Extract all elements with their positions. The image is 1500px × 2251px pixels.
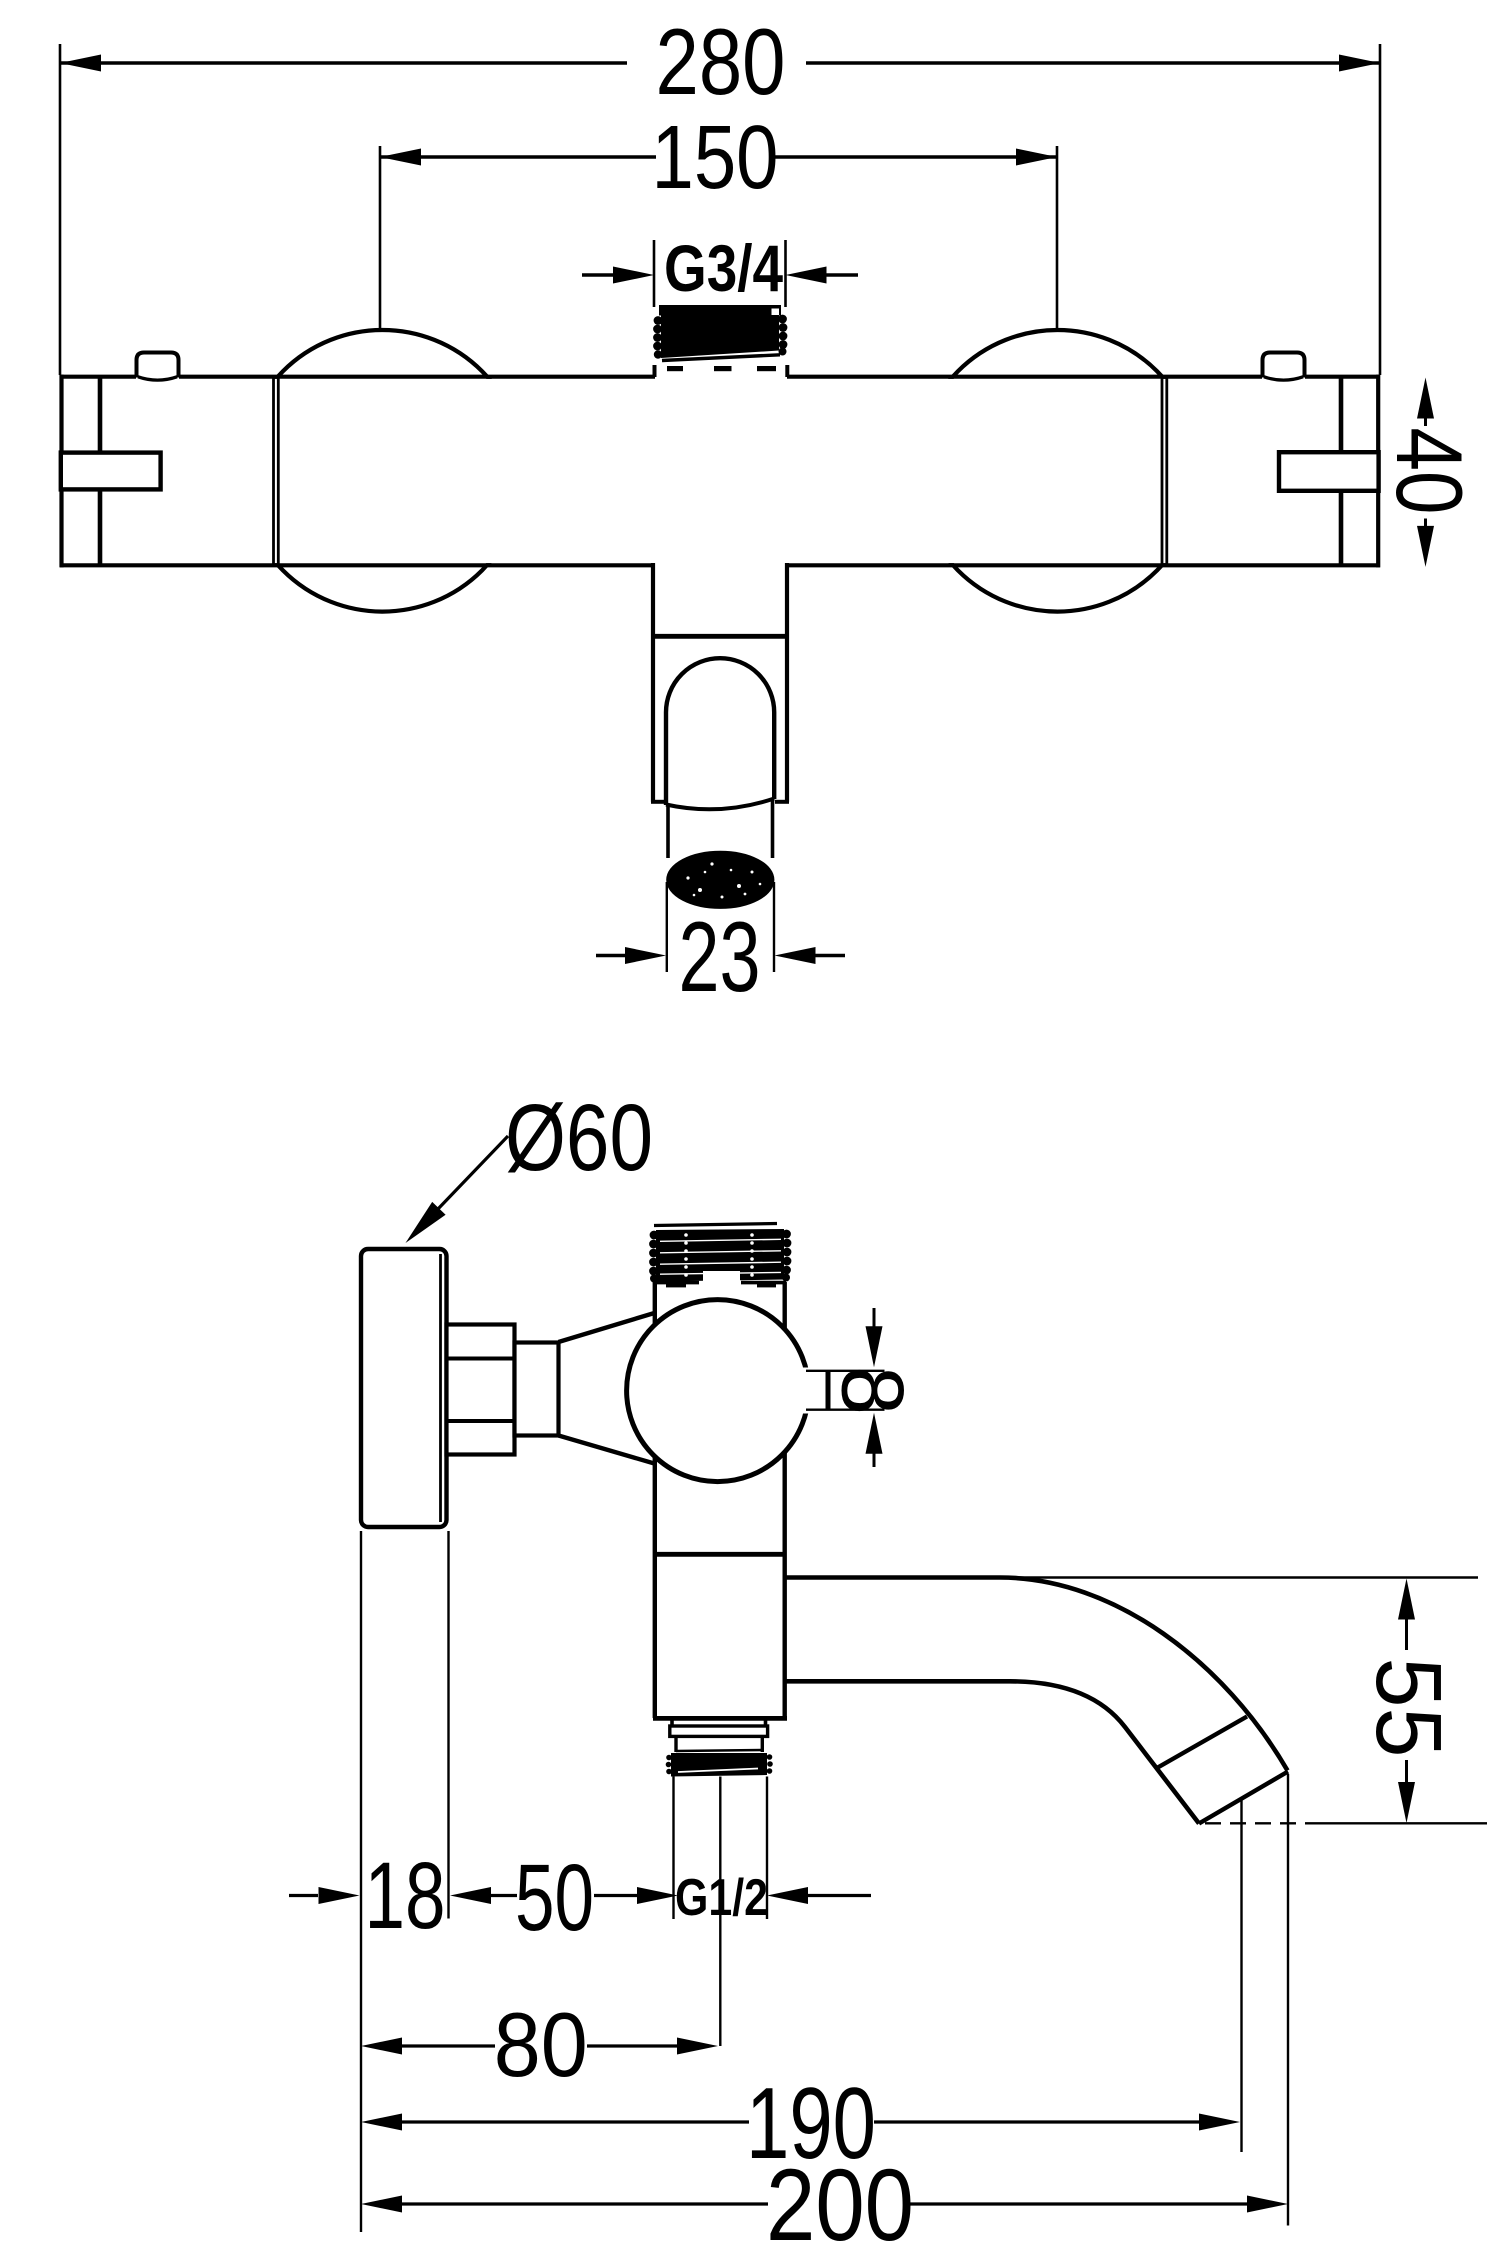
svg-text:Ø60: Ø60 [505, 1085, 653, 1191]
svg-text:8: 8 [823, 1366, 922, 1415]
svg-text:150: 150 [652, 108, 779, 208]
svg-text:50: 50 [515, 1845, 594, 1951]
svg-text:G1/2: G1/2 [675, 1869, 768, 1927]
svg-text:23: 23 [679, 901, 761, 1012]
svg-text:200: 200 [766, 2148, 914, 2251]
svg-text:40: 40 [1377, 428, 1482, 515]
svg-text:18: 18 [365, 1843, 446, 1949]
svg-text:280: 280 [656, 9, 786, 114]
svg-text:G3/4: G3/4 [664, 231, 783, 305]
svg-text:55: 55 [1357, 1658, 1461, 1758]
svg-text:80: 80 [494, 1995, 588, 2096]
